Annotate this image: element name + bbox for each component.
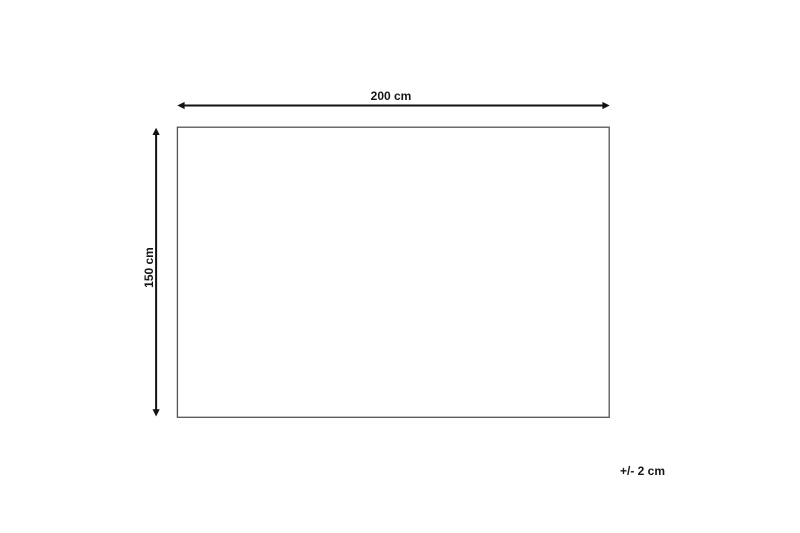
svg-text:150 cm: 150 cm	[142, 247, 156, 288]
svg-text:200 cm: 200 cm	[371, 89, 412, 103]
svg-text:+/- 2 cm: +/- 2 cm	[620, 464, 665, 478]
